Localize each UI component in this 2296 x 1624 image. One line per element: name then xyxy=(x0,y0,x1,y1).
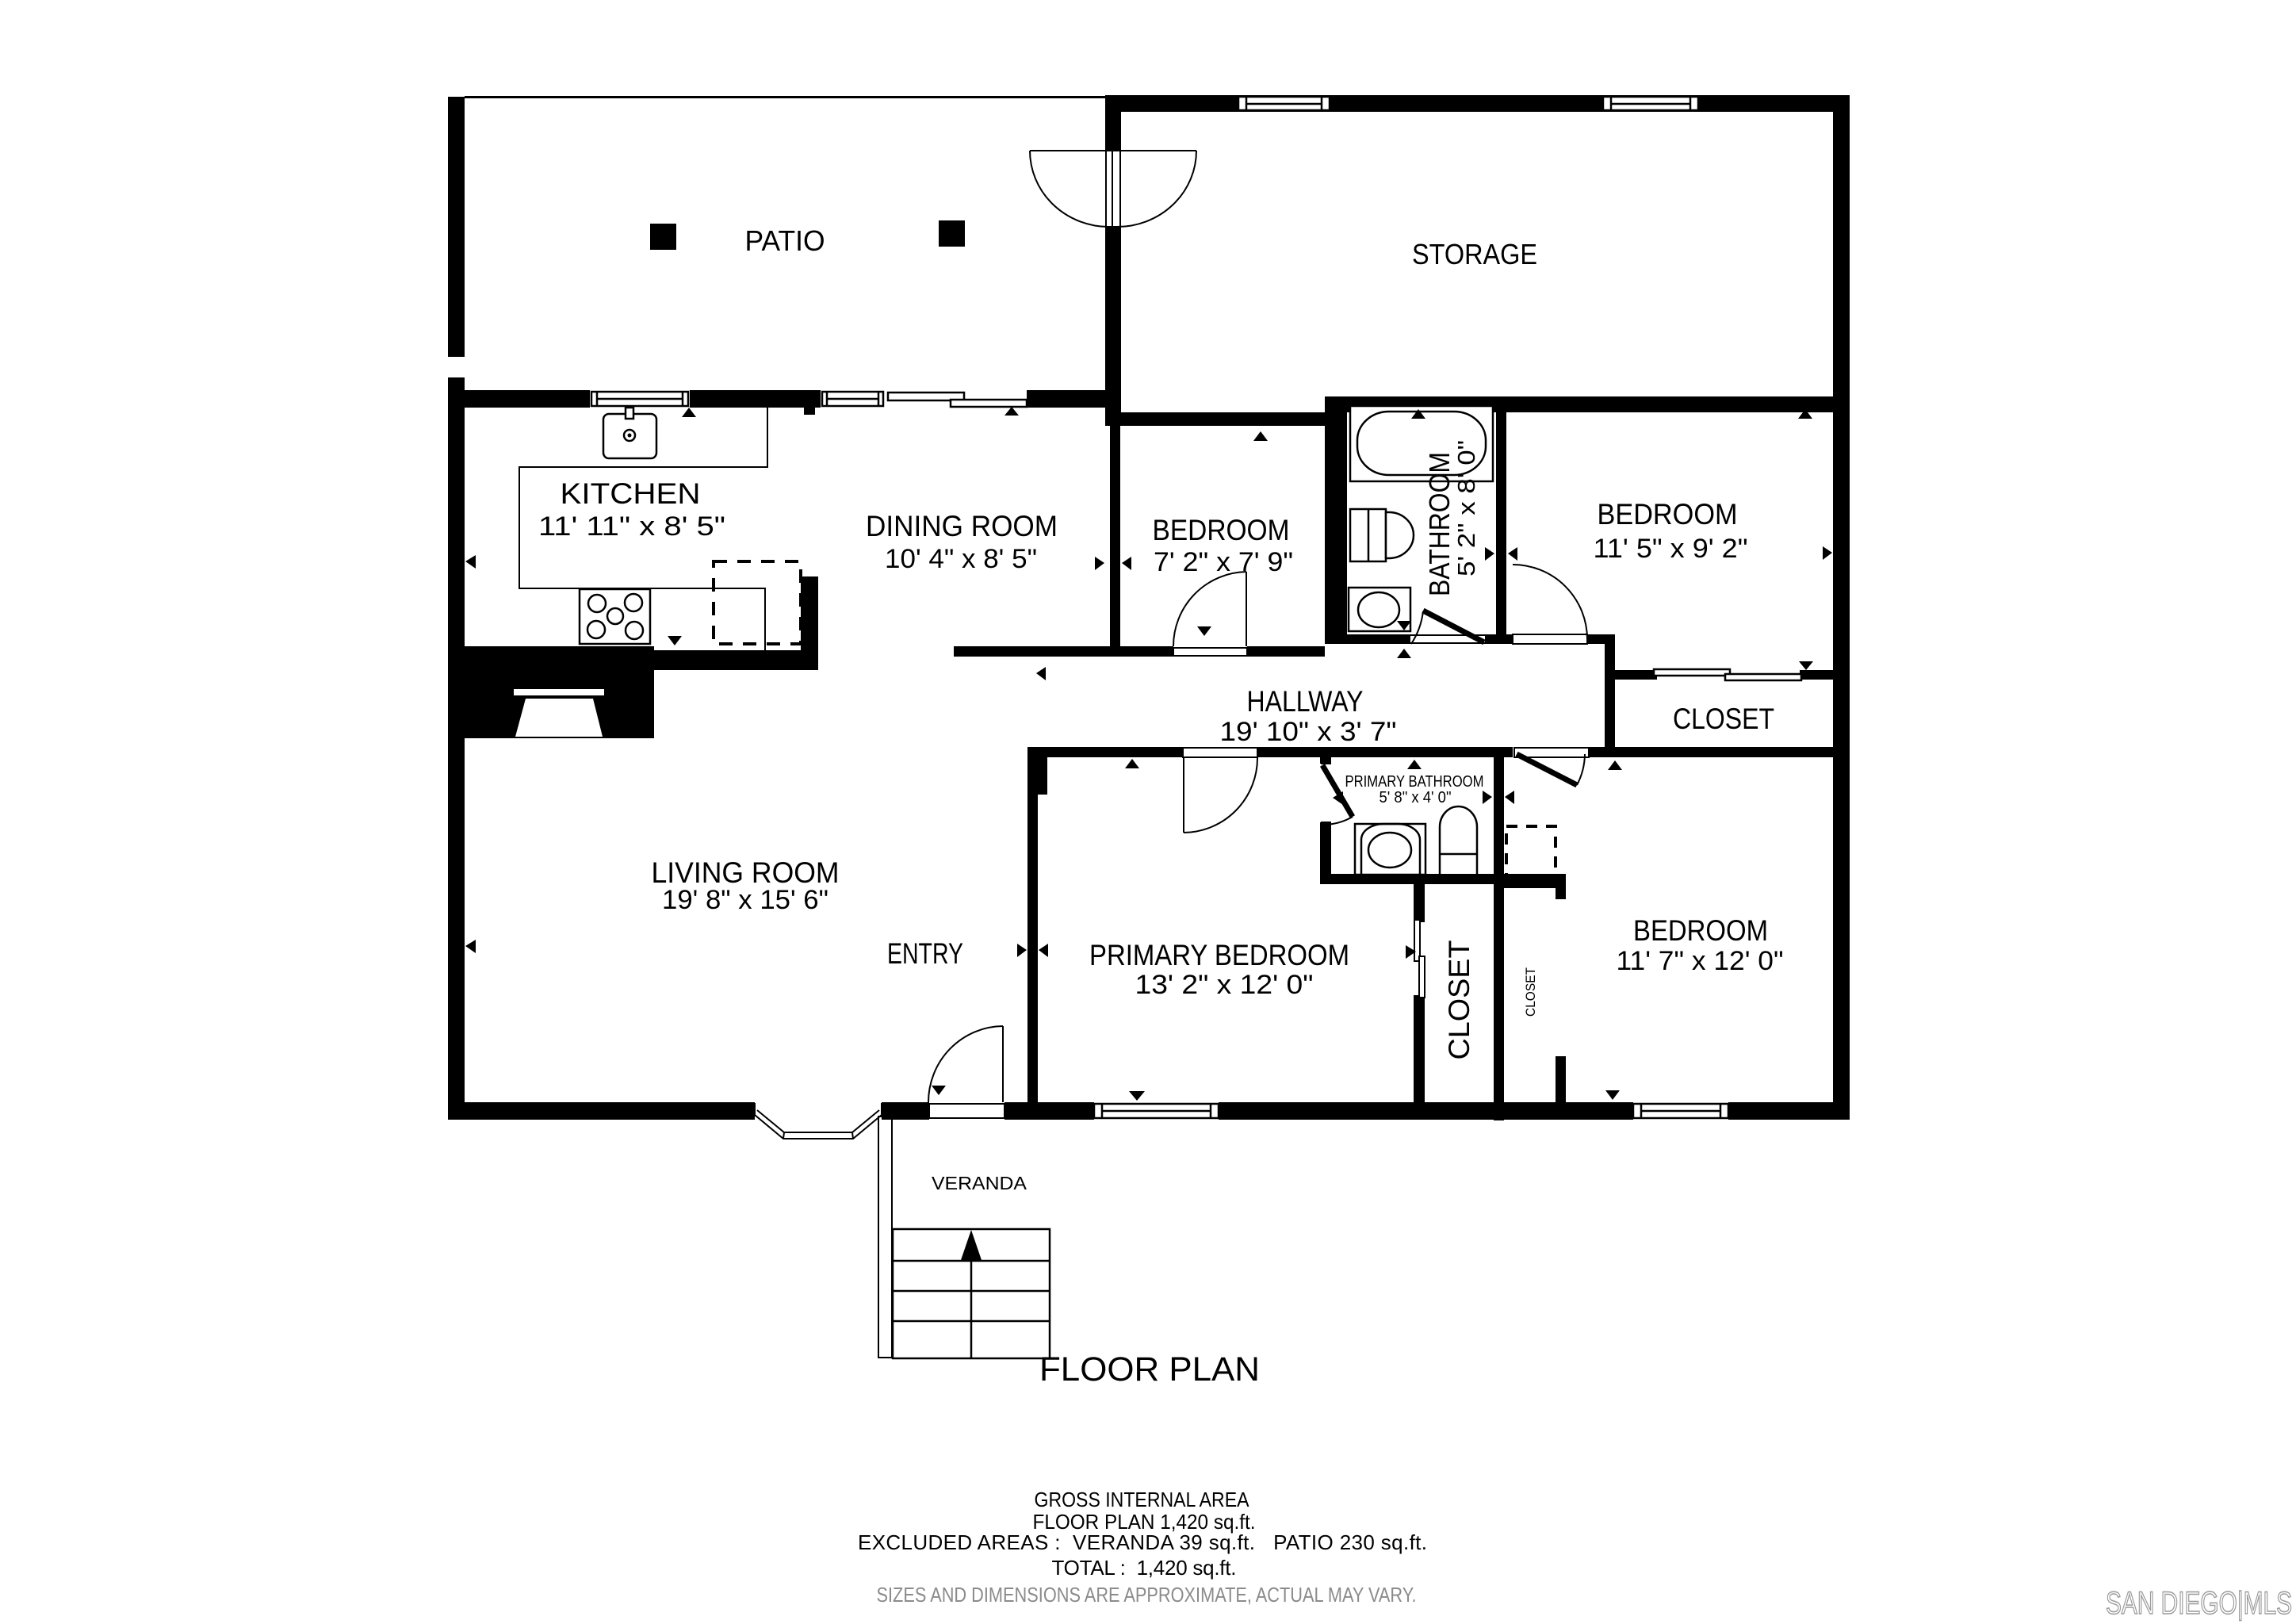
svg-text:19' 10" x 3' 7": 19' 10" x 3' 7" xyxy=(1220,717,1397,747)
svg-text:SAN DIEGO|MLS: SAN DIEGO|MLS xyxy=(2106,1586,2292,1621)
svg-text:10' 4" x 8' 5": 10' 4" x 8' 5" xyxy=(885,544,1037,574)
svg-text:5' 8" x 4' 0": 5' 8" x 4' 0" xyxy=(1380,789,1452,806)
svg-text:HALLWAY: HALLWAY xyxy=(1247,685,1364,718)
svg-text:EXCLUDED AREAS : VERANDA 39 s: EXCLUDED AREAS : VERANDA 39 sq.ft. PATIO… xyxy=(858,1530,1427,1554)
svg-text:5' 2" x 8' 0": 5' 2" x 8' 0" xyxy=(1452,440,1480,576)
svg-text:GROSS INTERNAL AREA: GROSS INTERNAL AREA xyxy=(1035,1488,1250,1511)
svg-text:13' 2" x 12' 0": 13' 2" x 12' 0" xyxy=(1135,970,1314,1000)
svg-text:VERANDA: VERANDA xyxy=(932,1173,1027,1193)
svg-text:PRIMARY BATHROOM: PRIMARY BATHROOM xyxy=(1345,773,1484,791)
svg-text:DINING ROOM: DINING ROOM xyxy=(866,510,1058,542)
svg-text:BEDROOM: BEDROOM xyxy=(1153,514,1290,546)
svg-text:11' 5" x 9' 2": 11' 5" x 9' 2" xyxy=(1594,534,1748,564)
svg-text:BEDROOM: BEDROOM xyxy=(1633,914,1768,947)
svg-text:11' 7" x 12' 0": 11' 7" x 12' 0" xyxy=(1617,946,1784,976)
svg-text:CLOSET: CLOSET xyxy=(1673,703,1774,735)
svg-text:19' 8" x 15' 6": 19' 8" x 15' 6" xyxy=(662,885,828,915)
svg-text:STORAGE: STORAGE xyxy=(1412,238,1537,270)
svg-text:7' 2" x 7' 9": 7' 2" x 7' 9" xyxy=(1154,547,1293,577)
svg-text:SIZES AND DIMENSIONS ARE APPRO: SIZES AND DIMENSIONS ARE APPROXIMATE, AC… xyxy=(877,1583,1417,1607)
svg-text:PATIO: PATIO xyxy=(745,224,825,257)
svg-text:BATHROOM: BATHROOM xyxy=(1423,452,1456,596)
svg-text:CLOSET: CLOSET xyxy=(1443,940,1475,1060)
svg-text:FLOOR PLAN: FLOOR PLAN xyxy=(1039,1350,1260,1388)
svg-text:PRIMARY BEDROOM: PRIMARY BEDROOM xyxy=(1089,939,1349,971)
svg-text:CLOSET: CLOSET xyxy=(1523,967,1538,1017)
svg-text:ENTRY: ENTRY xyxy=(887,937,963,970)
svg-text:TOTAL : 1,420 sq.ft.: TOTAL : 1,420 sq.ft. xyxy=(1052,1556,1237,1580)
svg-text:BEDROOM: BEDROOM xyxy=(1598,498,1738,530)
svg-text:KITCHEN: KITCHEN xyxy=(561,477,701,510)
svg-text:LIVING ROOM: LIVING ROOM xyxy=(652,856,840,889)
svg-text:11' 11" x 8' 5": 11' 11" x 8' 5" xyxy=(538,511,725,542)
